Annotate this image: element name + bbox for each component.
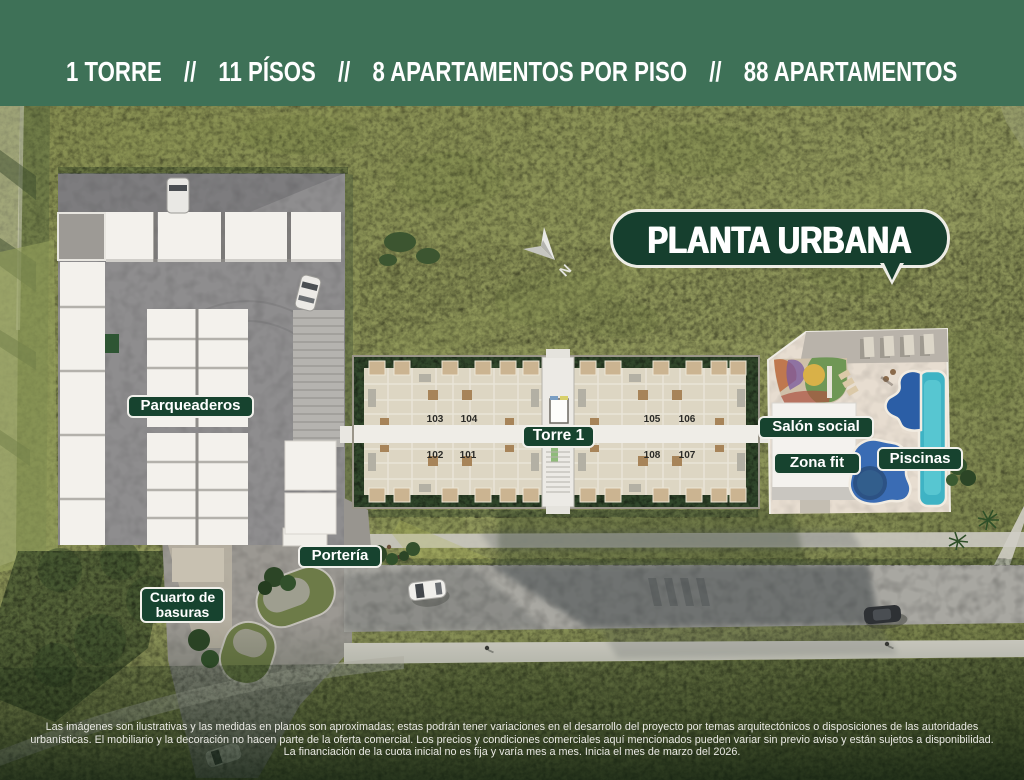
svg-text:102: 102 [427, 450, 444, 461]
svg-text:104: 104 [461, 414, 478, 425]
svg-text:106: 106 [679, 414, 696, 425]
svg-text:101: 101 [460, 450, 477, 461]
svg-text:108: 108 [644, 450, 661, 461]
svg-text:105: 105 [644, 414, 661, 425]
svg-text:107: 107 [679, 450, 696, 461]
svg-text:103: 103 [427, 414, 444, 425]
